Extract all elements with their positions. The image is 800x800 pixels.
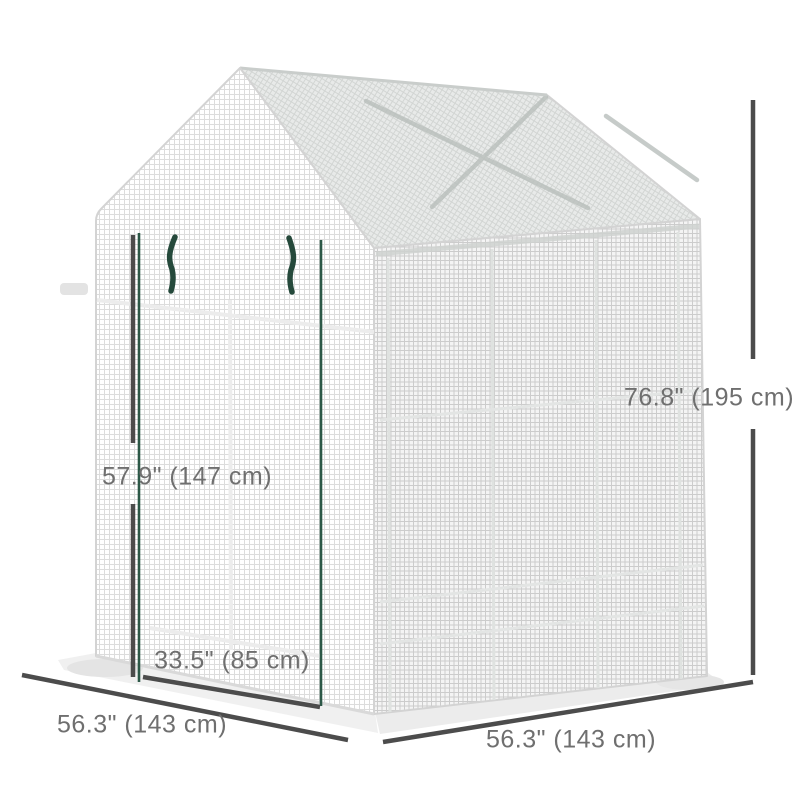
product-dimension-image: 76.8" (195 cm) 57.9" (147 cm) 33.5" (85 …: [0, 0, 800, 800]
greenhouse-side-wall: [374, 219, 707, 714]
dimension-label-door-width: 33.5" (85 cm): [154, 647, 310, 676]
cover-tie-tab: [60, 283, 88, 295]
dimension-label-overall-height: 76.8" (195 cm): [624, 384, 794, 413]
dimension-label-front-width: 56.3" (143 cm): [57, 711, 227, 740]
dimension-label-side-depth: 56.3" (143 cm): [486, 726, 656, 755]
dimension-label-door-height: 57.9" (147 cm): [102, 463, 272, 492]
